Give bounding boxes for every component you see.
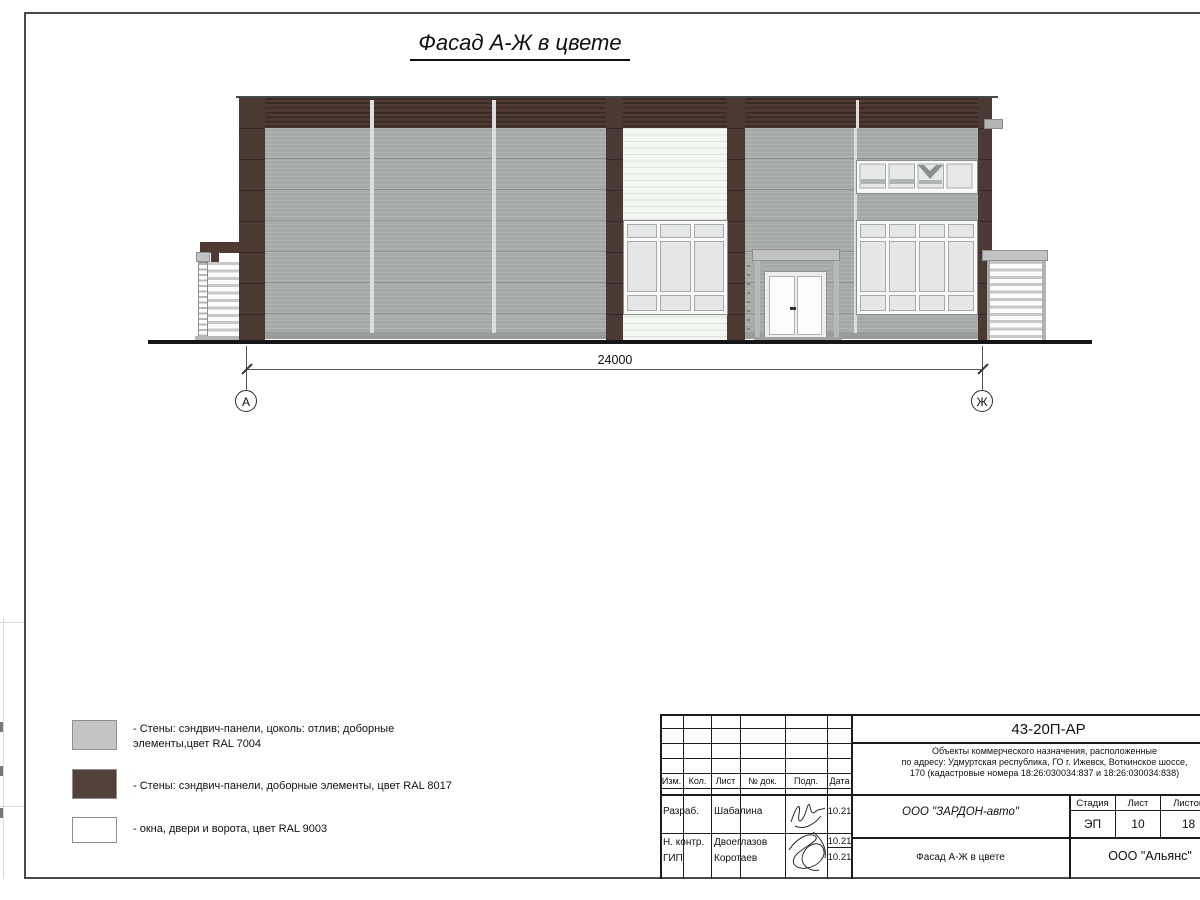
margin-tick [0,622,24,623]
axis-marker-zh: Ж [971,390,993,412]
row-role: Н. контр. [663,837,704,848]
panel-seam [370,100,374,128]
window-pane [860,224,886,238]
margin-marks [0,808,3,818]
legend-label: - окна, двери и ворота, цвет RAL 9003 [133,822,453,837]
entrance-door [764,271,827,340]
margin-marks [0,722,3,732]
right-louver-cap [982,250,1048,261]
pilaster-a [239,98,265,343]
window-pane [627,241,657,292]
row-role: Разраб. [663,806,699,817]
margin-line [3,617,4,879]
clerestory-window [856,160,978,194]
legend-swatch-ral8017 [72,769,117,799]
col-data: Дата [827,776,852,786]
wall-anchor-marks [747,265,750,337]
col-list: Лист [711,776,740,786]
legend-swatch-ral7004 [72,720,117,750]
page-title-text: Фасад А-Ж в цвете [410,30,629,61]
drawing-sheet: Фасад А-Ж в цвете [0,0,1200,900]
row-role: ГИП [663,853,683,864]
col-kol: Кол. [684,776,711,786]
col-doc: № док. [740,776,785,786]
stamp-sheet-title: Фасад А-Ж в цвете [852,852,1069,863]
door-handle [790,307,796,310]
stage-value: ЭП [1070,817,1115,831]
canopy-post [755,261,760,340]
right-window [856,220,978,315]
window-pane [860,295,886,311]
left-louver-slats [208,262,239,342]
doc-number: 43-20П-АР [852,721,1200,738]
panel-seam [492,100,496,128]
project-desc-line: Объекты коммерческого назначения, распол… [852,746,1200,756]
sheet-value: 10 [1116,817,1160,831]
dimension-value: 24000 [565,353,665,367]
window-pane [889,224,915,238]
col-podp: Подп. [785,776,827,786]
gutter-outlet [984,119,1003,129]
pilaster-mid-right [727,98,745,343]
window-pane [660,241,690,292]
row-date: 10.21 [827,806,852,817]
panel-seam [856,100,859,128]
window-pane [948,295,974,311]
ground-line [148,340,1092,344]
org-name: ООО "Альянс" [1070,849,1200,863]
window-pane [660,295,690,311]
window-pane [919,295,945,311]
window-pane [948,224,974,238]
sheet-header: Лист [1116,798,1160,809]
margin-marks [0,766,3,776]
canopy-post [834,261,839,340]
gate-window [623,220,728,315]
row-name: Двоеглазов [714,837,767,848]
window-pane [919,241,945,292]
frame-top [24,12,1200,14]
row-name: Шабалина [714,806,762,817]
pilaster-mid-left [606,98,623,343]
window-pane [694,241,724,292]
stage-header: Стадия [1070,798,1115,809]
legend-label: - Стены: сэндвич-панели, цоколь: отлив; … [133,722,458,752]
window-pane [660,224,690,238]
frame-left [24,12,26,879]
right-louver-slats [987,261,1046,342]
dimension-line [246,369,983,370]
window-pane [627,224,657,238]
col-izm: Изм. [660,776,683,786]
page-title: Фасад А-Ж в цвете [0,30,1040,61]
panel-seam [370,128,374,333]
project-desc-line: по адресу: Удмуртская республика, ГО г. … [852,757,1200,767]
window-pane [860,241,886,292]
window-pane [694,224,724,238]
window-pane [889,241,915,292]
panel-seam [492,128,496,333]
clerestory-glazing [859,163,973,189]
company-name: ООО "ЗАРДОН-авто" [852,806,1069,818]
sheets-value: 18 [1161,817,1200,831]
signature [787,796,827,832]
legend-label: - Стены: сэндвич-панели, доборные элемен… [133,779,553,794]
axis-marker-a: А [235,390,257,412]
left-louver-cap [196,252,210,262]
project-desc-line: 170 (кадастровые номера 18:26:030034:837… [852,768,1200,778]
entrance-canopy [752,249,840,261]
window-pane [627,295,657,311]
door-leaf-left [769,276,795,335]
window-pane [919,224,945,238]
row-name: Коротаев [714,853,757,864]
window-pane [948,241,974,292]
margin-tick [0,806,24,807]
legend-swatch-ral9003 [72,817,117,843]
window-pane [694,295,724,311]
signature [785,828,831,876]
sheets-header: Листов [1161,798,1200,809]
window-pane [889,295,915,311]
left-louver-ladder [198,262,208,342]
door-leaf-right [797,276,822,335]
frame-bottom [24,877,1200,879]
